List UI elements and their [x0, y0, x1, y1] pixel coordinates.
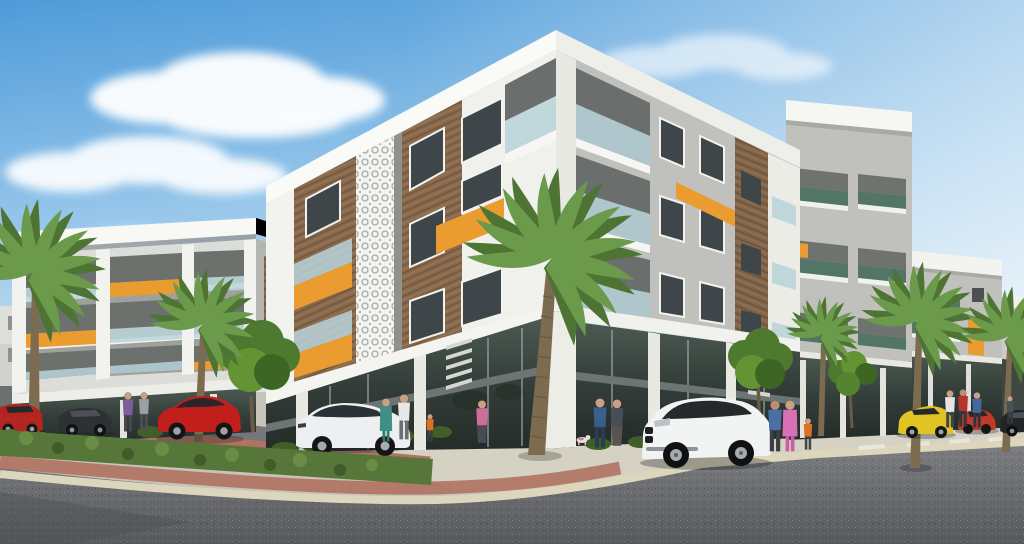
- architectural-render: [0, 0, 1024, 544]
- pillar: [414, 354, 426, 450]
- lattice-panel: [356, 136, 394, 377]
